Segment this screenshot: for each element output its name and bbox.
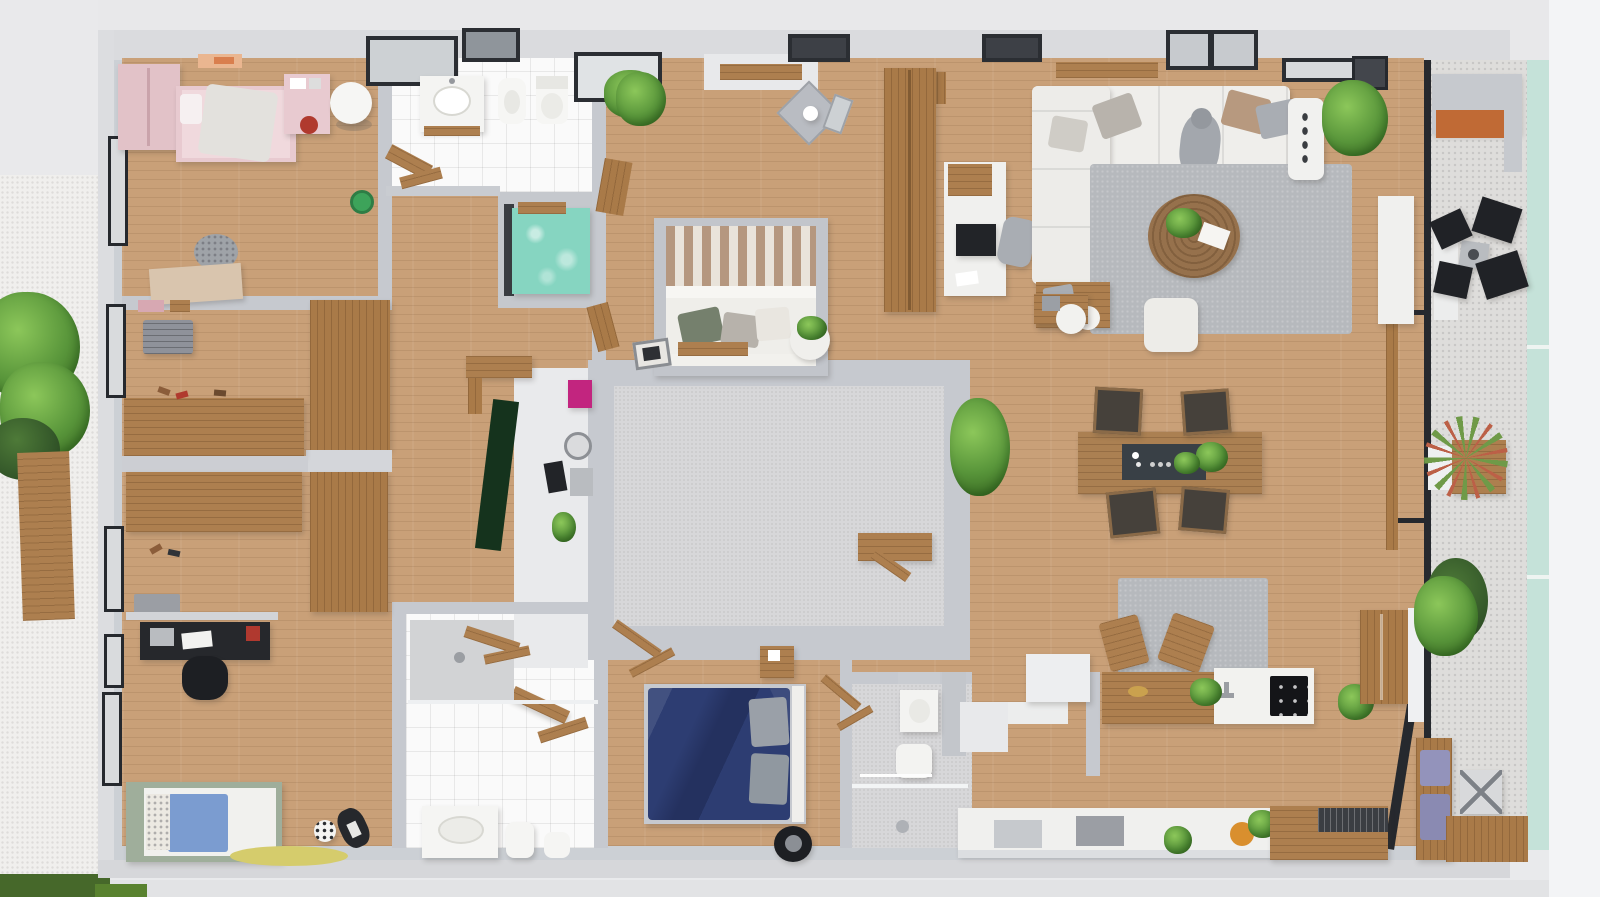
plant-spiky xyxy=(1424,416,1508,500)
wall-master-right xyxy=(840,626,852,848)
plant-patio-door xyxy=(1414,576,1478,656)
pendant-lamp-bulb xyxy=(803,106,818,121)
bed1-pillow xyxy=(180,94,202,124)
window-left-4 xyxy=(104,634,124,688)
grill-dark-south xyxy=(1318,808,1388,832)
side-table-plant xyxy=(797,316,827,340)
shower-drain-master xyxy=(896,820,909,833)
runner-candle-1 xyxy=(1132,452,1139,459)
wall-kids-bath-right xyxy=(594,612,608,848)
toilet-top-tank xyxy=(536,76,568,89)
bed2-blanket-fold xyxy=(666,286,816,298)
hot-tub-tray xyxy=(518,202,566,214)
runner-dot-2 xyxy=(1158,462,1163,467)
closet-table-upper xyxy=(124,398,304,456)
island-plant xyxy=(1190,678,1222,706)
cabinet-white-hall-b xyxy=(960,702,1008,752)
outside-left-plain xyxy=(0,0,98,175)
glass-transom-2 xyxy=(1398,518,1428,523)
boardwalk-left xyxy=(17,451,75,621)
plant-bed2 xyxy=(616,72,666,126)
bench-courtyard-inside xyxy=(858,533,932,561)
bed2-blanket-striped xyxy=(666,226,816,290)
cabinet-wood-glass xyxy=(1360,610,1408,704)
dining-chair-1 xyxy=(1093,387,1143,435)
desk-laptop xyxy=(150,628,174,646)
shelf-line-office xyxy=(126,612,278,620)
stool-courtyard-nw-leg xyxy=(468,378,482,414)
window-left-2 xyxy=(106,304,126,398)
kid-bed-pillow xyxy=(146,794,170,850)
office-monitor xyxy=(956,224,996,256)
dining-plant-table xyxy=(1196,442,1228,472)
bidet-top-bowl xyxy=(504,90,520,114)
rug-yellow xyxy=(230,846,348,866)
window-dark-2 xyxy=(788,34,850,62)
ball-chair xyxy=(330,82,372,124)
master-pillow-1 xyxy=(748,697,789,748)
skylight-dark-1 xyxy=(462,28,520,62)
plant-dining-wall xyxy=(950,398,1010,496)
mirror-master xyxy=(898,672,940,684)
shower-glass-kids xyxy=(408,700,598,704)
deck-wood-patio xyxy=(1446,816,1528,862)
shelf-item-pink xyxy=(138,300,164,312)
sink-kids-bowl xyxy=(438,816,484,844)
wardrobe-tall-divider xyxy=(908,70,911,310)
office-shelf-wood xyxy=(948,164,992,196)
plant-fireplace xyxy=(1322,80,1388,156)
window-small-4 xyxy=(1282,58,1358,82)
robot-vacuum-center xyxy=(785,835,802,852)
window-left-5 xyxy=(102,692,122,786)
wall-kids-bath-left xyxy=(392,602,406,848)
bed1-blanket xyxy=(197,83,278,162)
runner-candle-2 xyxy=(1136,462,1141,467)
runner-dot-1 xyxy=(1150,462,1155,467)
wall-kids-bath-top xyxy=(398,602,604,614)
nightstand-item xyxy=(768,650,780,661)
nook-pink-box xyxy=(568,380,592,408)
ottoman-cube xyxy=(1144,298,1198,352)
vanity-master-bowl xyxy=(909,699,930,723)
wardrobe-pink-divider xyxy=(147,68,150,146)
dining-chair-4 xyxy=(1178,486,1230,534)
wall-master-top-b xyxy=(668,626,844,638)
coffee-table-plant xyxy=(1166,208,1202,238)
skylight-2pane-mullion xyxy=(1208,30,1214,70)
shower-drain-kids xyxy=(454,652,465,663)
office-chair-black xyxy=(182,656,228,700)
counter-stove-gray xyxy=(1076,816,1124,846)
closet-wardrobe-upper xyxy=(310,300,390,450)
counter-plant-1 xyxy=(1164,826,1192,854)
closet-table-lower xyxy=(126,472,302,532)
grass-patch-left-2 xyxy=(95,884,147,897)
dresser-item-1 xyxy=(290,78,306,89)
green-pot-bed1 xyxy=(350,190,374,214)
master-pillow-2 xyxy=(749,753,790,805)
cabinet-glass-line xyxy=(1380,614,1383,700)
runner-dot-3 xyxy=(1166,462,1171,467)
grass-patch-left xyxy=(0,874,110,897)
dresser-item-2 xyxy=(309,78,321,89)
kid-bed-blanket-blue xyxy=(168,794,228,852)
vanity-tap xyxy=(449,78,455,84)
vanity-bowl xyxy=(433,86,471,116)
sofa-pillow-2 xyxy=(1047,115,1088,153)
window-left-1 xyxy=(108,136,128,246)
dining-chair-2 xyxy=(1181,388,1232,435)
nook-gray-box xyxy=(570,468,593,496)
toilet-top-seat xyxy=(541,93,563,119)
closet-shelf-mid xyxy=(306,450,392,472)
bench-foot-bed2 xyxy=(678,342,748,356)
window-bench-wood xyxy=(1056,62,1158,78)
stool-x-frame xyxy=(1460,770,1502,814)
shelf-item-wood xyxy=(170,300,190,312)
wall-bed1-right xyxy=(378,58,392,298)
floorplan-3d-render xyxy=(0,0,1600,897)
desk-paper xyxy=(181,630,213,649)
master-headboard xyxy=(792,686,804,822)
console-white-inside xyxy=(1378,196,1414,324)
box-gray-ne xyxy=(1042,296,1060,311)
shower-glass-master xyxy=(852,784,968,788)
toy-red xyxy=(300,116,318,134)
patio-bench-arm xyxy=(1504,74,1522,172)
door-frame-wood-right xyxy=(1386,314,1398,550)
nook-green-plant xyxy=(552,512,576,542)
photo-frame-photo xyxy=(642,346,661,361)
island-fruit xyxy=(1128,686,1148,697)
closet-divider xyxy=(122,456,308,472)
safe-box xyxy=(143,320,193,354)
fireplace-vents xyxy=(1300,110,1312,168)
pool-edge-seam-2 xyxy=(1527,575,1549,579)
vanity-wood-base xyxy=(424,126,480,136)
closet-wardrobe-lower xyxy=(310,472,388,612)
courtyard-floor xyxy=(614,386,944,626)
window-dark-3 xyxy=(982,34,1042,62)
hot-tub-water xyxy=(512,208,590,294)
stool-courtyard-nw xyxy=(466,356,532,378)
desk-red-box xyxy=(246,626,260,641)
person-head xyxy=(1191,108,1212,129)
bed2-pillow-white xyxy=(755,307,792,342)
toilet-kids xyxy=(506,822,534,858)
bidet-kids xyxy=(544,832,570,858)
nook-mirror xyxy=(564,432,592,460)
counter-lip xyxy=(958,850,1272,858)
patio-table-dot xyxy=(1468,249,1479,260)
table-round-white-ne xyxy=(1056,304,1086,334)
towel-rail-master xyxy=(860,774,932,777)
dining-chair-3 xyxy=(1106,488,1161,539)
dining-plant-trail xyxy=(1174,452,1200,474)
lounger-cushion-1 xyxy=(1420,750,1450,786)
niche-wood-shelf xyxy=(720,64,802,80)
patio-chair-3 xyxy=(1433,261,1473,299)
toilet-master xyxy=(896,744,932,778)
vanity-nook-floor xyxy=(514,368,588,668)
soccer-ball xyxy=(314,820,336,842)
skylight-bed1-glow xyxy=(214,57,234,64)
pool-edge-teal xyxy=(1527,60,1549,850)
outside-bottom-strip xyxy=(98,880,1549,897)
cooktop-black xyxy=(1270,676,1308,716)
shoe-3 xyxy=(214,389,226,396)
play-desk xyxy=(149,263,243,305)
closet-white-ne-bath xyxy=(1026,654,1090,702)
counter-sink-gray xyxy=(994,820,1042,848)
window-left-3 xyxy=(104,526,124,612)
pool-edge-seam-1 xyxy=(1527,345,1549,349)
outside-right-wall xyxy=(1549,0,1600,897)
